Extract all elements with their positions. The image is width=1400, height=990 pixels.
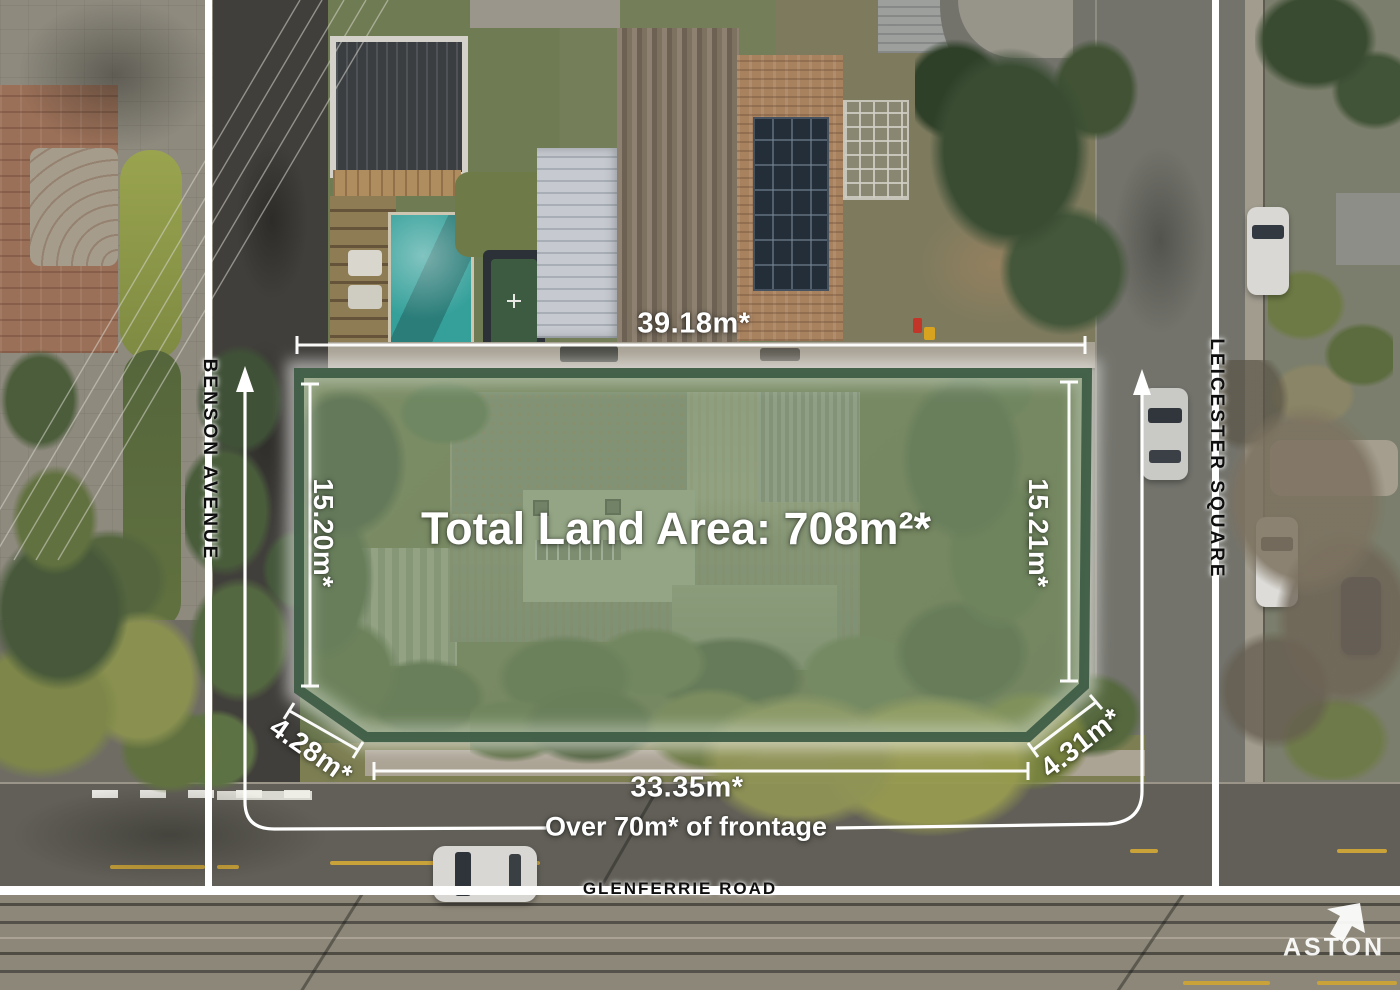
aston-logo-text: ASTON — [1283, 934, 1385, 963]
frontage-label: Over 70m* of frontage — [545, 812, 827, 843]
frontage-arrow-right — [1133, 369, 1151, 395]
dim-top-label: 39.18m* — [637, 308, 750, 341]
frontage-arrow-left — [236, 366, 254, 392]
dim-left-label: 15.20m* — [307, 478, 339, 587]
aerial-site-photo: Total Land Area: 708m²* 39.18m* 15.20m* … — [0, 0, 1400, 990]
dim-bottom-label: 33.35m* — [630, 772, 743, 805]
road-label-benson-avenue: BENSON AVENUE — [198, 359, 220, 562]
road-label-leicester-square: LEICESTER SQUARE — [1205, 338, 1227, 579]
total-land-area-label: Total Land Area: 708m²* — [421, 503, 931, 555]
plot-boundary — [299, 373, 1087, 737]
dim-right-label: 15.21m* — [1022, 478, 1054, 587]
road-label-glenferrie-road: GLENFERRIE ROAD — [583, 879, 777, 899]
